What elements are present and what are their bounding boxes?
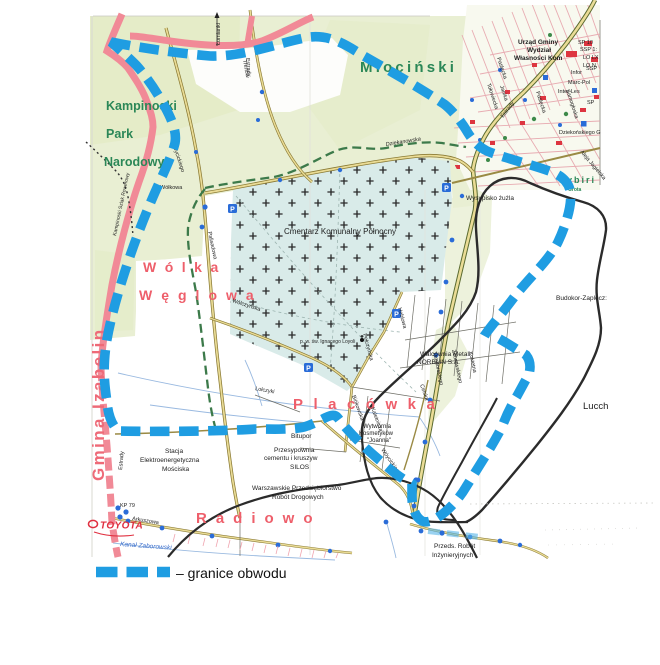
svg-text:Narodowy: Narodowy	[104, 155, 164, 169]
svg-text:Bitupor: Bitupor	[291, 433, 312, 440]
svg-text:P: P	[230, 206, 235, 213]
svg-text:SP 10: SP 10	[578, 40, 593, 46]
svg-text:Warszawskie Przedsiębiorstwo: Warszawskie Przedsiębiorstwo	[252, 485, 342, 492]
svg-text:Robót Drogowych: Robót Drogowych	[272, 494, 324, 501]
svg-text:Marc-Pol: Marc-Pol	[568, 80, 590, 86]
svg-text:KP 79: KP 79	[120, 503, 135, 509]
svg-text:"Joanna": "Joanna"	[367, 438, 391, 444]
svg-text:Inżynieryjnych: Inżynieryjnych	[432, 552, 474, 559]
svg-text:p. w. św. Ignacego Loyoli: p. w. św. Ignacego Loyoli	[300, 339, 355, 345]
svg-text:Mościska: Mościska	[162, 466, 189, 473]
svg-text:Infor: Infor	[571, 70, 582, 76]
svg-text:SSP 1:: SSP 1:	[580, 47, 597, 53]
svg-text:LO LX: LO LX	[583, 55, 599, 61]
svg-text:P: P	[306, 365, 311, 372]
svg-text:cementu i kruszyw: cementu i kruszyw	[264, 455, 318, 462]
svg-text:Cmentarz Komunalny Północny: Cmentarz Komunalny Północny	[284, 227, 396, 236]
svg-text:SILOS: SILOS	[290, 464, 310, 471]
svg-text:– granice obwodu: – granice obwodu	[176, 565, 287, 581]
svg-text:Park: Park	[106, 127, 133, 141]
svg-text:Wółkowa: Wółkowa	[160, 185, 183, 191]
svg-text:Przesypownia: Przesypownia	[274, 447, 315, 454]
svg-text:Lucch: Lucch	[583, 401, 608, 412]
svg-text:Kosmetyków: Kosmetyków	[359, 431, 394, 437]
svg-text:Placówka: Placówka	[293, 396, 445, 413]
svg-text:SP: SP	[587, 100, 595, 106]
svg-text:Własności Kom: Własności Kom	[514, 55, 563, 62]
svg-text:Wydział: Wydział	[527, 47, 551, 54]
svg-text:Radiowo: Radiowo	[196, 510, 322, 527]
svg-text:Elektroenergetyczna: Elektroenergetyczna	[140, 457, 200, 464]
svg-text:Dziekońskiego G: Dziekońskiego G	[559, 130, 601, 136]
svg-text:Walcownia Metali: Walcownia Metali	[420, 351, 470, 358]
svg-text:Wysypisko żużla: Wysypisko żużla	[466, 195, 514, 202]
svg-text:Budokor-Zaplecz:: Budokor-Zaplecz:	[556, 295, 607, 302]
svg-text:Węglowa: Węglowa	[139, 287, 263, 303]
svg-text:P: P	[444, 185, 449, 192]
svg-text:Stacja: Stacja	[165, 448, 183, 455]
svg-text:Wólka: Wólka	[143, 259, 227, 275]
svg-text:Przeds. Robót: Przeds. Robót	[434, 543, 475, 550]
svg-text:Urząd Gminy: Urząd Gminy	[518, 39, 558, 46]
svg-text:SSP: SSP	[586, 66, 597, 72]
